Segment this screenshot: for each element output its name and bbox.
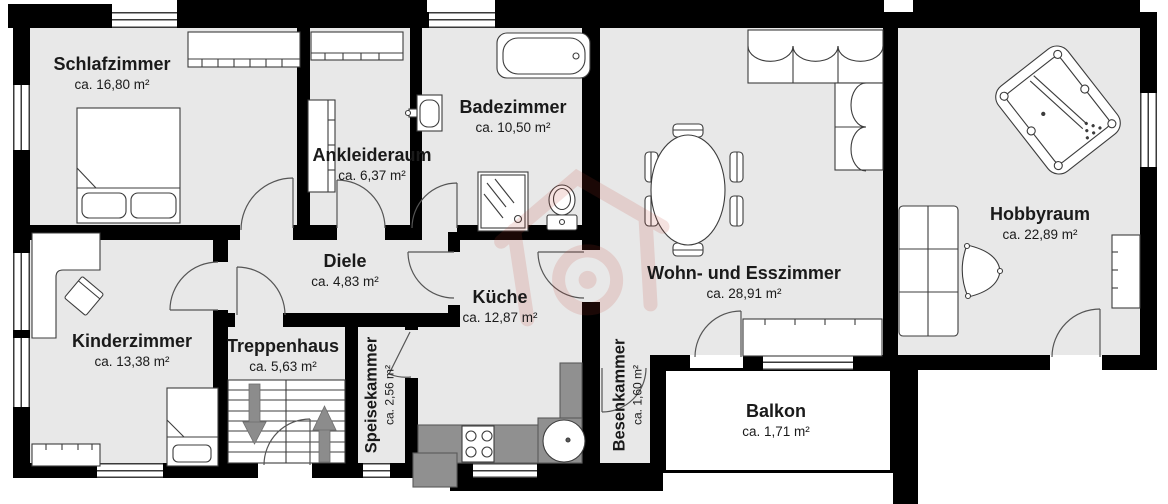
wall xyxy=(213,310,228,463)
wall xyxy=(853,355,893,370)
room-name: Besenkammer xyxy=(611,339,630,452)
window xyxy=(13,253,30,330)
floor-living-room xyxy=(598,28,883,355)
room-label-kueche: Küche ca. 12,87 m² xyxy=(462,287,537,325)
room-label-speisekammer: Speisekammer ca. 2,56 m² xyxy=(363,337,398,454)
window xyxy=(763,355,853,370)
floor-left-wing xyxy=(28,28,598,463)
wall xyxy=(385,225,422,240)
room-label-kinderzimmer: Kinderzimmer ca. 13,38 m² xyxy=(72,331,192,369)
wall xyxy=(13,12,30,85)
wall xyxy=(1140,12,1157,93)
window xyxy=(1140,93,1157,167)
room-name: Badezimmer xyxy=(459,97,566,118)
room-name: Hobbyraum xyxy=(990,204,1090,225)
room-area: ca. 4,83 m² xyxy=(311,274,379,290)
wall xyxy=(918,355,1050,370)
room-area: ca. 1,71 m² xyxy=(742,424,810,440)
wall xyxy=(13,463,97,478)
wall xyxy=(537,463,663,478)
floorplan: Schlafzimmer ca. 16,80 m² Ankleideraum c… xyxy=(0,0,1168,504)
wall xyxy=(283,313,460,327)
window xyxy=(13,85,30,150)
room-area: ca. 16,80 m² xyxy=(53,77,170,93)
window xyxy=(97,463,163,478)
room-label-hobbyraum: Hobbyraum ca. 22,89 m² xyxy=(990,204,1090,242)
window xyxy=(429,12,495,28)
room-name: Schlafzimmer xyxy=(53,54,170,75)
room-area: ca. 10,50 m² xyxy=(459,120,566,136)
room-label-diele: Diele ca. 4,83 m² xyxy=(311,251,379,289)
wall xyxy=(390,463,473,478)
window xyxy=(363,463,390,478)
room-area: ca. 2,56 m² xyxy=(384,337,398,454)
wall xyxy=(293,225,337,240)
room-name: Treppenhaus xyxy=(227,336,339,357)
wall xyxy=(1140,167,1157,370)
wall xyxy=(582,302,600,478)
room-label-treppenhaus: Treppenhaus ca. 5,63 m² xyxy=(227,336,339,374)
wall xyxy=(13,330,30,338)
wall xyxy=(163,463,258,478)
wall xyxy=(650,355,690,370)
room-name: Diele xyxy=(311,251,379,272)
wall xyxy=(743,355,763,370)
wall xyxy=(893,355,918,504)
wall xyxy=(13,407,30,463)
wall xyxy=(582,28,600,250)
wall xyxy=(28,225,240,240)
wall xyxy=(650,370,663,478)
room-name: Kinderzimmer xyxy=(72,331,192,352)
wall xyxy=(297,28,310,232)
room-area: ca. 5,63 m² xyxy=(227,359,339,375)
room-label-besenkammer: Besenkammer ca. 1,60 m² xyxy=(611,339,646,452)
window xyxy=(13,338,30,407)
wall xyxy=(450,478,663,491)
room-area: ca. 22,89 m² xyxy=(990,227,1090,243)
wall xyxy=(495,12,1157,28)
wall xyxy=(405,327,418,330)
floor-hobby-room xyxy=(898,28,1140,355)
room-label-balkon: Balkon ca. 1,71 m² xyxy=(742,401,810,439)
room-label-badezimmer: Badezimmer ca. 10,50 m² xyxy=(459,97,566,135)
wall xyxy=(448,305,460,313)
room-name: Ankleideraum xyxy=(312,145,431,166)
room-name: Balkon xyxy=(742,401,810,422)
room-area: ca. 6,37 m² xyxy=(312,168,431,184)
wall xyxy=(213,240,228,262)
window xyxy=(473,463,537,478)
room-label-schlafzimmer: Schlafzimmer ca. 16,80 m² xyxy=(53,54,170,92)
room-area: ca. 13,38 m² xyxy=(72,354,192,370)
wall xyxy=(312,463,363,478)
room-area: ca. 1,60 m² xyxy=(632,339,646,452)
room-name: Küche xyxy=(462,287,537,308)
wall xyxy=(405,378,418,463)
room-label-ankleideraum: Ankleideraum ca. 6,37 m² xyxy=(312,145,431,183)
wall xyxy=(345,327,358,463)
wall xyxy=(883,28,898,355)
room-name: Speisekammer xyxy=(363,337,382,454)
room-name: Wohn- und Esszimmer xyxy=(647,263,841,284)
wall xyxy=(448,232,460,252)
room-area: ca. 28,91 m² xyxy=(647,286,841,302)
wall xyxy=(177,12,429,28)
window xyxy=(112,12,177,28)
room-label-wohn-esszimmer: Wohn- und Esszimmer ca. 28,91 m² xyxy=(647,263,841,301)
wall xyxy=(410,28,422,232)
room-area: ca. 12,87 m² xyxy=(462,310,537,326)
wall xyxy=(457,225,582,240)
wall xyxy=(228,313,235,327)
